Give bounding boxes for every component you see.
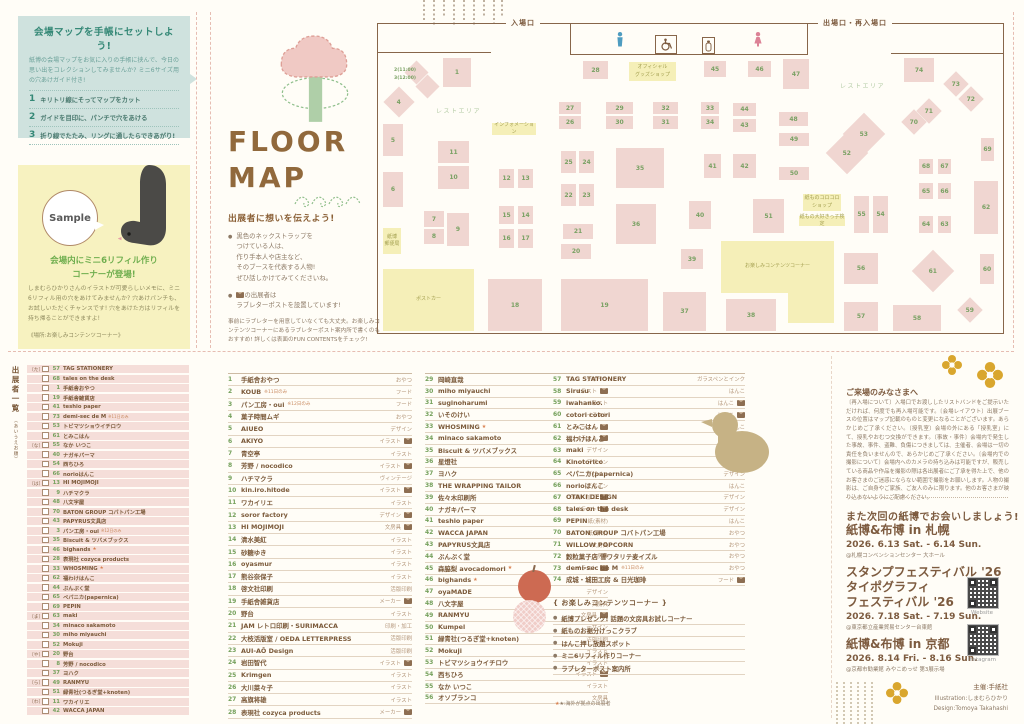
right-panel-separator [846,497,1008,498]
booth-number: 54 [876,211,884,218]
booth-number: 55 [425,683,438,690]
index-row: 42WACCA JAPAN [27,707,189,715]
map-zone: インフォメーション [492,123,536,135]
index-booth-number: 20 [51,651,60,657]
message-block: 出展者に想いを伝えよう! ● 黒色のネックストラップを つけている人は、 作り手… [228,211,380,344]
exhibitor-name: 穀粒菓子店 雪ワタリテ麦イズル [566,552,658,561]
sample-box: Sample 会場内にミニ6リフィル作り コーナーが登場! しまむらひかりさんの… [18,165,190,349]
exhibitor-name: トビマツショウイチロウ [438,658,508,667]
booth-9: 9 [447,213,469,246]
exhibitor-row: 15砂糖ゆきイラスト [228,546,412,558]
booth-number: 12 [502,175,510,182]
booth-number: 25 [228,672,241,679]
booth-number: 66 [553,482,566,489]
exhibitor-name: bighands [438,576,471,584]
booth-number: 52 [843,149,851,156]
index-booth-number: 28 [51,556,60,562]
booth-number: 27 [566,105,574,112]
booth-number: 47 [425,588,438,595]
booth-63: 63 [938,216,951,233]
exhibitor-name: パン工房・oui [241,400,284,409]
index-exhibitor-name: PEPIN [63,604,81,610]
booth-number: 49 [425,612,438,619]
booth-number: 71 [925,107,933,114]
index-exhibitor-name: ペパニカ(papernica) [63,593,119,601]
date-note: ※11日のみ [264,389,287,395]
index-booth-number: 53 [51,423,60,429]
fun-contents-item: ●紙博プレゼンツ! 話題の文房具お試しコーナー [553,612,745,625]
envelope-icon [404,487,412,493]
index-exhibitor-name: ナガキパーマ [63,451,95,459]
exhibitor-name: ペパニカ(papernica) [566,469,633,478]
booth-number: 45 [425,565,438,572]
event-date: 2026. 7.18 Sat. - 7.19 Sun. [846,612,966,622]
index-booth-number: 30 [51,632,60,638]
checkbox [42,622,49,629]
exhibitor-name: demi-sec de M [566,564,618,572]
checkbox [42,413,49,420]
booth-number: 48 [789,116,797,123]
next-events-heading: また次回の紙博でお会いしましょう! [846,508,1019,523]
index-group-label: 〔わ〕 [29,698,42,705]
instagram-qr-code [967,624,999,656]
booth-number: 57 [553,376,566,383]
checkbox [42,670,49,677]
nursing-room-icon [705,40,712,52]
index-row: 43PAPYRUS文具店 [27,517,189,525]
index-row: 〔ま〕63maki [27,612,189,620]
exhibitor-name: 野台 [241,609,254,618]
index-booth-number: 35 [51,537,60,543]
category-label: メーカー [379,597,401,605]
exhibitor-row: 17熊谷奈保子イラスト [228,571,412,583]
index-row: 〔は〕13HI MOJIMOJI [27,479,189,487]
exhibitor-row: 24岩田智代イラスト [228,657,412,669]
booth-6: 6 [383,172,403,207]
exhibitor-name: KOUB [241,388,261,396]
index-row: 35Biscuit & ツバメブックス [27,536,189,544]
index-row: 〔や〕20野台 [27,650,189,658]
index-exhibitor-name: なか いつこ [63,441,91,449]
exhibitor-row: 11ワカイリエイラスト [228,497,412,509]
booth-13: 13 [518,169,533,188]
index-booth-number: 11 [51,699,60,705]
index-booth-number: 70 [51,509,60,515]
index-booth-number: 52 [51,642,60,648]
index-row: 3パン工房・oui※12日のみ [27,527,189,535]
category-label: イラスト [391,499,412,507]
index-group-label: 〔は〕 [29,480,42,487]
booth-number: 51 [764,213,772,220]
index-exhibitor-name: HI MOJIMOJI [63,480,99,486]
booth-number: 26 [566,119,574,126]
booth-number: 19 [228,598,241,605]
index-booth-number: 19 [51,395,60,401]
exhibitor-name: TAG STATIONERY [566,375,626,383]
checkbox [42,442,49,449]
booth-number: 33 [706,105,714,112]
booth-number: 1 [455,69,459,76]
booth-21: 21 [563,224,593,239]
event: 紙博&布博 in 京都2026. 8.14 Fri. - 8.16 Sun.@京… [846,637,966,673]
booth-40: 40 [689,201,711,229]
exhibitor-row: 22大枝活版室 / OEDA LETTERPRESS活版印刷 [228,633,412,645]
exhibitor-row: 10kin.iro.hitodeイラスト [228,485,412,497]
credit-line: Illustration:しまむらひかり [846,694,1008,704]
index-booth-number: 43 [51,518,60,524]
booth-number: 20 [228,610,241,617]
category-label: おやつ [729,564,745,572]
envelope-icon [404,512,412,518]
booth-16: 16 [499,229,514,248]
index-exhibitor-name: 野台 [63,650,74,658]
date-note: ※12日のみ [287,401,310,407]
exhibitor-name: oyaMADE [438,588,472,596]
index-row: 33WHOSMING★ [27,565,189,573]
event-title: スタンプフェスティバル '26 [846,565,966,580]
exhibitor-name: PAPYRUS文具店 [438,540,490,549]
category-label: イラスト [391,683,412,691]
index-booth-number: 13 [51,480,60,486]
index-booth-number: 46 [51,547,60,553]
index-row: 〔な〕55なか いつこ [27,441,189,449]
black-bird-illustration [118,163,172,251]
exhibitor-row: 14清水美紅イラスト [228,534,412,546]
booth-number: 60 [983,266,991,273]
checkbox [42,499,49,506]
booth-number: 40 [425,506,438,513]
booth-19: 19 [561,279,648,331]
checkbox [42,565,49,572]
exhibitor-row: 27高旗将雄イラスト [228,694,412,706]
category-label: 活版印刷 [390,647,412,655]
upcoming-events: 紙博&布博 in 札幌2026. 6.13 Sat. - 6.14 Sun.@札… [846,523,966,679]
setmap-step: 2ガイドを目印に、パンチで穴をあける [29,109,179,127]
booth-10: 10 [438,166,469,189]
booth-number: 34 [425,435,438,442]
exhibitor-row: 12soror factoryデザイン [228,509,412,521]
booth-number: 50 [425,624,438,631]
setmap-instruction-box: 会場マップを手帳にセットしよう! 紙博の会場マップをお気に入りの手帳に挟んで、今… [18,16,190,138]
website-qr-label: Website [965,610,999,616]
index-exhibitor-name: ワカイリエ [63,698,90,706]
event: 紙博&布博 in 札幌2026. 6.13 Sat. - 6.14 Sun.@札… [846,523,966,559]
envelope-icon [404,438,412,444]
booth-36: 36 [616,204,656,244]
index-booth-number: 1 [51,385,60,391]
booth-69: 69 [981,138,994,161]
index-booth-number: 33 [51,566,60,572]
booth-number: 13 [521,175,529,182]
sample-heading: 会場内にミニ6リフィル作り コーナーが登場! [18,255,190,282]
booth-47: 47 [783,59,809,89]
checkbox [42,394,49,401]
fun-contents-item-text: 紙ものお裾分けっこクラブ [561,626,637,635]
index-exhibitor-name: 表現社 cozyca products [63,555,129,563]
index-exhibitor-name: 八文字屋 [63,498,84,506]
exhibitor-name: kin.iro.hitode [241,486,290,494]
star-icon: ★ [92,547,96,552]
booth-number: 41 [425,517,438,524]
star-icon: ★ [473,577,477,583]
index-booth-number: 42 [51,708,60,714]
booth-59: 59 [957,297,982,322]
index-row: 28表現社 cozyca products [27,555,189,563]
checkbox [42,470,49,477]
checkbox [42,556,49,563]
index-booth-number: 61 [51,433,60,439]
fun-contents-item-text: はんこ押し放題スポット [561,639,630,648]
exhibitor-name: PEPIN [566,517,587,525]
booth-number: 73 [553,565,566,572]
setmap-steps: 1キリトリ線にそってマップをカット2ガイドを目印に、パンチで穴をあける3折り線で… [29,91,179,145]
bullet-dot-icon: ● [553,640,557,646]
booth-number: 18 [228,585,241,592]
booth-58: 58 [893,305,941,331]
booth-number: 24 [228,659,241,666]
index-exhibitor-name: demi-sec de M [63,414,106,420]
exhibitor-name: なか いつこ [438,682,472,691]
exhibitor-name: AIUEO [241,425,263,433]
booth-number: 70 [910,118,918,125]
event-date: 2026. 8.14 Fri. - 8.16 Sun. [846,654,966,664]
envelope-icon [404,709,412,715]
booth-number: 59 [553,399,566,406]
star-icon: ★ [508,565,512,571]
pink-circle-illustration [513,600,546,633]
exhibitor-name: tales on the desk [566,505,628,513]
exhibitor-name: ヨハク [438,469,457,478]
event-title: 紙博&布博 in 札幌 [846,523,966,538]
sample-body: しまむらひかりさんのイラストが可愛らしいメモに、ミニ6リフィル用の穴をあけてみま… [28,285,180,324]
booth-number: 8 [432,233,436,240]
booth-42: 42 [733,154,756,178]
index-booth-number: 41 [51,404,60,410]
message-note: 事前にラブレターを用意していなくても大丈夫。お楽しみコンテンツコーナーにあるラブ… [228,318,380,345]
category-label: はんこ [718,399,734,407]
exhibitor-name: 芳野 / nocodico [241,461,293,470]
exhibitor-row: 1手紙舎おやつおやつ [228,374,412,386]
booth-25: 25 [561,151,576,173]
booth-number: 31 [425,399,438,406]
credit-line: Design:Tomoya Takahashi [846,704,1008,714]
booth-number: 14 [228,536,241,543]
visitors-heading: ご来場のみなさまへ [846,387,918,398]
category-label: はんこ [729,482,745,490]
booth-number: 61 [553,423,566,430]
rest-area-label: レストエリア [840,81,885,90]
booth-number: 45 [711,66,719,73]
booth-46: 46 [748,61,771,77]
booth-number: 32 [661,105,669,112]
booth-31: 31 [653,116,678,129]
index-group-label: 〔や〕 [29,651,42,658]
bullet-dot-icon: ● [553,653,557,659]
fun-contents-item: ●ラブレターポスト案内所 [553,662,745,675]
exhibitor-name: 表現社 cozyca products [241,708,321,717]
exhibitor-row: 69PEPINはんこ [553,516,745,528]
category-label: イラスト [391,450,412,458]
fun-contents-item-text: 紙博プレゼンツ! 話題の文房具お試しコーナー [561,614,692,623]
exhibitor-name: オソブランコ [438,693,476,702]
exhibitor-row: 4菓子時間ムギおやつ [228,411,412,423]
envelope-icon [236,292,244,298]
booth-number: 12 [228,512,241,519]
exhibitor-name: 福わけはんこ [566,434,604,443]
exhibitor-name: 大川菜々子 [241,683,273,692]
inner-wall-left [378,52,491,53]
exhibitor-row: 16oyasmurイラスト [228,559,412,571]
fun-contents-item: ●ミニ6リフィル作りコーナー [553,650,745,663]
booth-64: 64 [919,216,933,233]
booth-number: 21 [574,228,582,235]
booth-number: 63 [553,447,566,454]
booth-74: 74 [904,58,934,82]
booth-number: 58 [913,315,921,322]
booth-68: 68 [919,159,933,174]
booth-number: 44 [740,106,748,113]
booth-number: 15 [502,212,510,219]
category-label: イラスト [380,437,401,445]
message-bullet-1-text: 黒色のネックストラップを つけている人は、 作り手本人や店主など、 そのブースを… [236,231,332,283]
booth-number: 40 [696,212,704,219]
exhibitor-name: Kumpel [438,623,465,631]
exhibitor-name: ワカイリエ [241,498,273,507]
exhibitor-row: 58Sirusuはんこ [553,386,745,398]
booth-number: 7 [432,216,436,223]
exit-label: 出場口・再入場口 [818,18,892,28]
category-label: イラスト [391,696,412,704]
booth-number: 22 [228,635,241,642]
booth-number: 68 [922,163,930,170]
cut-line-horizontal [8,351,1014,352]
overseas-footnote-text: ★:海外が拠点の出展者 [559,701,610,707]
booth-number: 5 [391,137,395,144]
index-booth-number: 63 [51,613,60,619]
checkbox [42,584,49,591]
setmap-body: 紙博の会場マップをお気に入りの手帳に挟んで、今日の思い出をコレクションしてみませ… [29,56,179,91]
booth-1: 1 [443,58,471,87]
booth-number: 67 [940,163,948,170]
booth-number: 14 [521,212,529,219]
exhibitor-name: 八文字屋 [438,599,464,608]
page-title-line2: MAP [228,160,348,196]
booth-number: 72 [967,95,975,102]
booth-61: 61 [912,250,954,292]
booth-time-label: 2(11:00) [394,68,416,73]
booth-34: 34 [701,116,719,129]
category-label: イラスト [391,548,412,556]
index-exhibitor-name: WHOSMING [63,566,98,572]
category-label: イラスト [380,462,401,470]
booth-57: 57 [844,302,878,331]
index-row: 30miho miyauchi [27,631,189,639]
exhibitor-name: HI MOJIMOJI [241,523,284,531]
exhibitor-row: 66norioはんこはんこ [553,480,745,492]
booth-54: 54 [873,196,888,233]
setmap-step: 3折り線でたたみ、リングに通したらできあがり! [29,127,179,145]
index-group-label: 〔ま〕 [29,613,42,620]
booth-number: 63 [940,221,948,228]
booth-66: 66 [938,183,951,199]
booth-number: 7 [228,450,241,457]
checkbox [42,632,49,639]
index-booth-number: 54 [51,461,60,467]
booth-number: 24 [582,159,590,166]
booth-number: 57 [857,313,865,320]
exhibitor-row: 57TAG STATIONERYガラスペンとインク [553,374,745,386]
booth-60: 60 [980,254,994,284]
duck-illustration [698,410,770,474]
booth-number: 42 [740,163,748,170]
index-row: 66norioはんこ [27,470,189,478]
map-zone: 紙博 郵便局 [383,228,401,254]
visitors-body: 〔再入場について〕入場口でお渡ししたリストバンドをご提示いただければ、何度でも再… [846,399,1009,503]
index-booth-number: 40 [51,452,60,458]
message-heading: 出展者に想いを伝えよう! [228,211,380,224]
booth-number: 71 [553,541,566,548]
exhibitor-row: 6AKIYOイラスト [228,436,412,448]
setmap-step: 1キリトリ線にそってマップをカット [29,91,179,109]
checkbox [42,404,49,411]
index-title-text: 出展者一覧 [11,366,20,414]
exhibitor-name: ナガキパーマ [438,505,476,514]
exhibitor-name: 岡崎直哉 [438,375,464,384]
index-exhibitor-name: tales on the desk [63,376,115,382]
exhibitor-name: minaco sakamoto [438,434,501,442]
booth-number: 51 [425,635,438,642]
index-group-label: 〔な〕 [29,442,42,449]
booth-number: 41 [708,163,716,170]
index-exhibitor-name: とみこはん [63,432,90,440]
category-label: 活版印刷 [390,585,412,593]
exhibitor-name: OTAKI DESIGN [566,493,617,501]
exhibitor-name: 大枝活版室 / OEDA LETTERPRESS [241,634,352,643]
exhibitor-name: 手紙舎おやつ [241,375,279,384]
date-note: ※11日のみ [108,414,128,420]
checkbox [42,432,49,439]
map-zone: オフィシャル グッズショップ [629,62,676,81]
message-bullet-2: ● の出展者は ラブレターポストを設置しています! [228,290,380,311]
rest-area-label: レストエリア [436,106,481,115]
fun-contents-item: ●はんこ押し放題スポット [553,637,745,650]
booth-number: 34 [706,119,714,126]
checkbox [42,451,49,458]
index-booth-number: 3 [51,528,60,534]
event: スタンプフェスティバル '26タイポグラフィフェスティバル '262026. 7… [846,565,966,631]
exhibitor-name: RANMYU [438,611,469,619]
bullet-dot-icon: ● [553,628,557,634]
category-label: ヴィンテージ [380,474,412,482]
booth-number: 6 [391,186,395,193]
fun-contents-item: ●紙ものお裾分けっこクラブ [553,625,745,638]
booth-number: 5 [228,425,241,432]
exhibitor-name: 手紙舎雑貨店 [241,597,279,606]
index-row: 62福わけはんこ [27,574,189,582]
index-exhibitor-name: norioはんこ [63,470,94,478]
category-label: フード [396,400,412,408]
event-title: 紙博&布博 in 京都 [846,637,966,652]
fun-contents-items: ●紙博プレゼンツ! 話題の文房具お試しコーナー●紙ものお裾分けっこクラブ●はんこ… [553,612,745,675]
checkbox [42,508,49,515]
booth-35: 35 [616,148,664,188]
category-label: イラスト [391,573,412,581]
exhibitor-row: 2KOUB※11日のみフード [228,386,412,398]
wheelchair-box [655,35,677,54]
index-row: 44ぶんぷく堂 [27,584,189,592]
exhibitor-row: 26大川菜々子イラスト [228,682,412,694]
index-exhibitor-name: 緑青社(つるぎ堂+knoten) [63,688,130,696]
